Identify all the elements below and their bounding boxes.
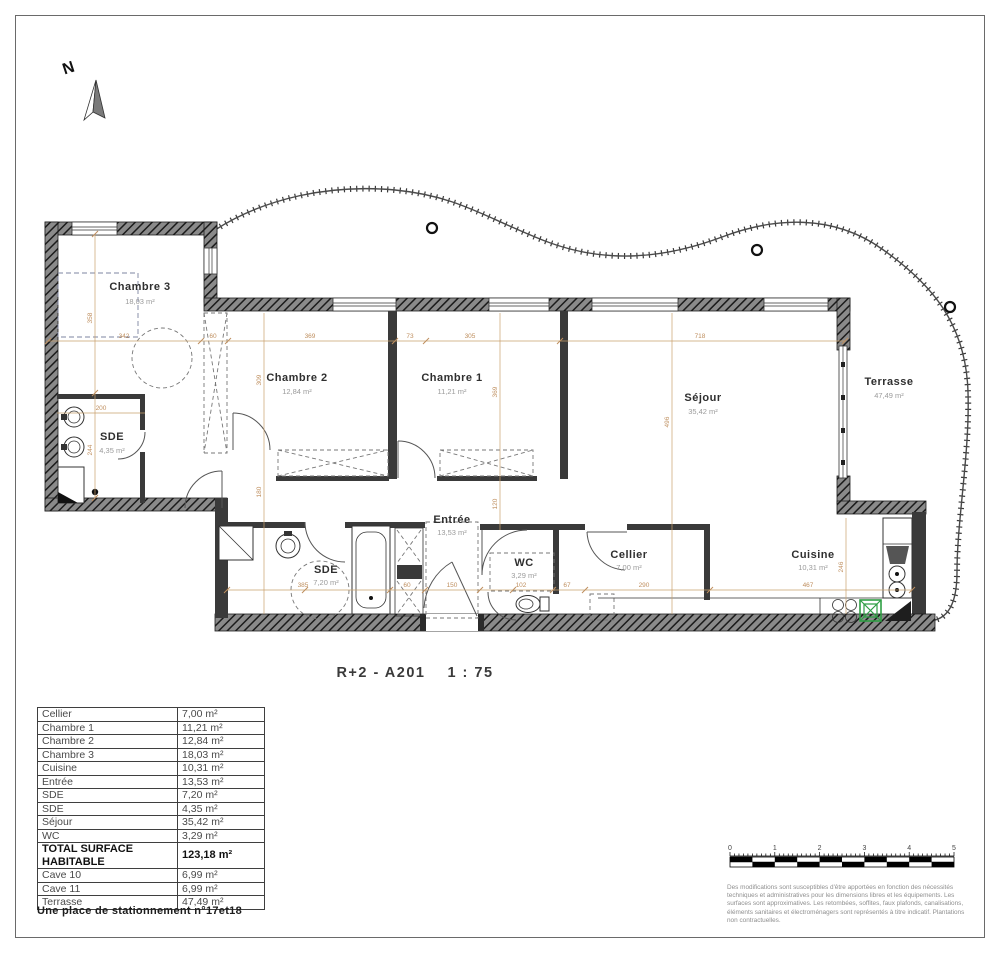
bathtub bbox=[352, 526, 390, 614]
entrance-door-opening bbox=[420, 614, 484, 631]
table-row: Cave 116,99 m² bbox=[38, 882, 265, 896]
dimension-lines bbox=[45, 231, 915, 614]
window bbox=[204, 248, 217, 274]
svg-text:200: 200 bbox=[96, 405, 107, 412]
double-washbasin bbox=[61, 407, 84, 457]
window bbox=[333, 298, 396, 311]
svg-text:18,03 m²: 18,03 m² bbox=[125, 297, 155, 306]
table-total-row: TOTAL SURFACE HABITABLE123,18 m² bbox=[38, 843, 265, 869]
room-label-cellier: Cellier bbox=[610, 549, 647, 561]
corner-cabinet bbox=[885, 601, 911, 621]
svg-text:496: 496 bbox=[664, 416, 671, 427]
svg-text:120: 120 bbox=[492, 498, 499, 509]
washbasin bbox=[276, 531, 300, 558]
svg-text:5: 5 bbox=[952, 845, 956, 852]
window bbox=[592, 298, 678, 311]
svg-text:67: 67 bbox=[563, 582, 571, 589]
svg-text:7,00 m²: 7,00 m² bbox=[616, 563, 642, 572]
terrace-boundary bbox=[215, 189, 968, 621]
svg-text:11,21 m²: 11,21 m² bbox=[437, 387, 467, 396]
svg-text:290: 290 bbox=[639, 582, 650, 589]
door-sde7 bbox=[305, 522, 345, 562]
door-chambre1 bbox=[398, 441, 435, 478]
svg-text:47,49 m²: 47,49 m² bbox=[874, 391, 904, 400]
plan-title: R+2 - A2011 : 75 bbox=[250, 665, 580, 681]
svg-text:305: 305 bbox=[465, 333, 476, 340]
scale-bar: 0 1 2 3 4 5 bbox=[726, 842, 962, 870]
svg-text:369: 369 bbox=[492, 386, 499, 397]
north-arrow-icon bbox=[84, 80, 105, 120]
wardrobe bbox=[440, 450, 533, 476]
svg-text:246: 246 bbox=[838, 561, 845, 572]
svg-text:358: 358 bbox=[87, 312, 94, 323]
shower bbox=[58, 467, 84, 503]
svg-text:10,31 m²: 10,31 m² bbox=[798, 563, 828, 572]
svg-text:4: 4 bbox=[907, 845, 911, 852]
surface-table: Cellier7,00 m² Chambre 111,21 m² Chambre… bbox=[37, 707, 265, 910]
svg-text:369: 369 bbox=[305, 333, 316, 340]
svg-text:73: 73 bbox=[406, 333, 414, 340]
svg-text:4,35 m²: 4,35 m² bbox=[99, 446, 125, 455]
svg-text:342: 342 bbox=[119, 333, 130, 340]
scale-bar-labels: 0 1 2 3 4 5 bbox=[728, 845, 956, 852]
glass-wall bbox=[839, 346, 847, 478]
table-row: Chambre 318,03 m² bbox=[38, 748, 265, 762]
svg-text:3: 3 bbox=[862, 845, 866, 852]
toilet bbox=[516, 596, 549, 613]
room-label-wc: WC bbox=[514, 557, 533, 569]
svg-text:2: 2 bbox=[818, 845, 822, 852]
windows bbox=[72, 222, 847, 631]
drawing-ref: R+2 - A201 bbox=[336, 665, 425, 681]
svg-text:60: 60 bbox=[209, 333, 217, 340]
washing-machine bbox=[219, 526, 253, 560]
window bbox=[489, 298, 549, 311]
table-row: Séjour35,42 m² bbox=[38, 816, 265, 830]
dimension-labels: 342 60 369 73 305 718 385 60 150 102 67 … bbox=[87, 312, 845, 589]
table-row: Entrée13,53 m² bbox=[38, 775, 265, 789]
svg-text:7,20 m²: 7,20 m² bbox=[313, 578, 339, 587]
room-label-chambre1: Chambre 1 bbox=[421, 372, 482, 384]
svg-text:467: 467 bbox=[803, 582, 814, 589]
svg-text:3,29 m²: 3,29 m² bbox=[511, 571, 537, 580]
door-chambre2 bbox=[233, 413, 270, 450]
table-row: Cuisine10,31 m² bbox=[38, 762, 265, 776]
svg-text:35,42 m²: 35,42 m² bbox=[688, 407, 718, 416]
svg-text:309: 309 bbox=[256, 374, 263, 385]
room-label-cuisine: Cuisine bbox=[791, 549, 834, 561]
terrace-column bbox=[427, 223, 437, 233]
door-entree bbox=[424, 562, 477, 616]
svg-text:60: 60 bbox=[403, 582, 411, 589]
room-label-sde2: SDE bbox=[100, 431, 124, 443]
room-label-chambre2: Chambre 2 bbox=[266, 372, 327, 384]
table-row: Chambre 111,21 m² bbox=[38, 721, 265, 735]
svg-text:102: 102 bbox=[516, 582, 527, 589]
svg-text:1: 1 bbox=[773, 845, 777, 852]
svg-text:13,53 m²: 13,53 m² bbox=[437, 528, 467, 537]
room-label-chambre3: Chambre 3 bbox=[109, 281, 170, 293]
svg-text:0: 0 bbox=[728, 845, 732, 852]
room-label-entree: Entrée bbox=[433, 514, 470, 526]
table-row: Cave 106,99 m² bbox=[38, 869, 265, 883]
svg-text:12,84 m²: 12,84 m² bbox=[282, 387, 312, 396]
room-label-sde1: SDE bbox=[314, 564, 338, 576]
window bbox=[764, 298, 828, 311]
scale-bar-ruler bbox=[730, 852, 954, 856]
svg-text:718: 718 bbox=[695, 333, 706, 340]
window bbox=[72, 222, 117, 235]
table-row: Cellier7,00 m² bbox=[38, 708, 265, 722]
scale-bar-blocks bbox=[730, 857, 954, 867]
turning-circle bbox=[132, 328, 192, 388]
wardrobe bbox=[278, 450, 388, 476]
table-row: Chambre 212,84 m² bbox=[38, 735, 265, 749]
svg-text:244: 244 bbox=[87, 444, 94, 455]
room-label-terrasse: Terrasse bbox=[864, 376, 913, 388]
kitchen-column bbox=[883, 518, 912, 598]
parking-note: Une place de stationnement n°17et18 bbox=[37, 905, 242, 917]
svg-text:180: 180 bbox=[256, 486, 263, 497]
table-row: SDE7,20 m² bbox=[38, 789, 265, 803]
drawing-scale: 1 : 75 bbox=[447, 665, 493, 681]
terrace-column bbox=[752, 245, 762, 255]
terrace-column bbox=[945, 302, 955, 312]
svg-text:150: 150 bbox=[447, 582, 458, 589]
table-row: WC3,29 m² bbox=[38, 829, 265, 843]
room-label-sejour: Séjour bbox=[684, 392, 721, 404]
svg-text:385: 385 bbox=[298, 582, 309, 589]
table-row: SDE4,35 m² bbox=[38, 802, 265, 816]
disclaimer-text: Des modifications sont susceptibles d'êt… bbox=[727, 884, 965, 925]
